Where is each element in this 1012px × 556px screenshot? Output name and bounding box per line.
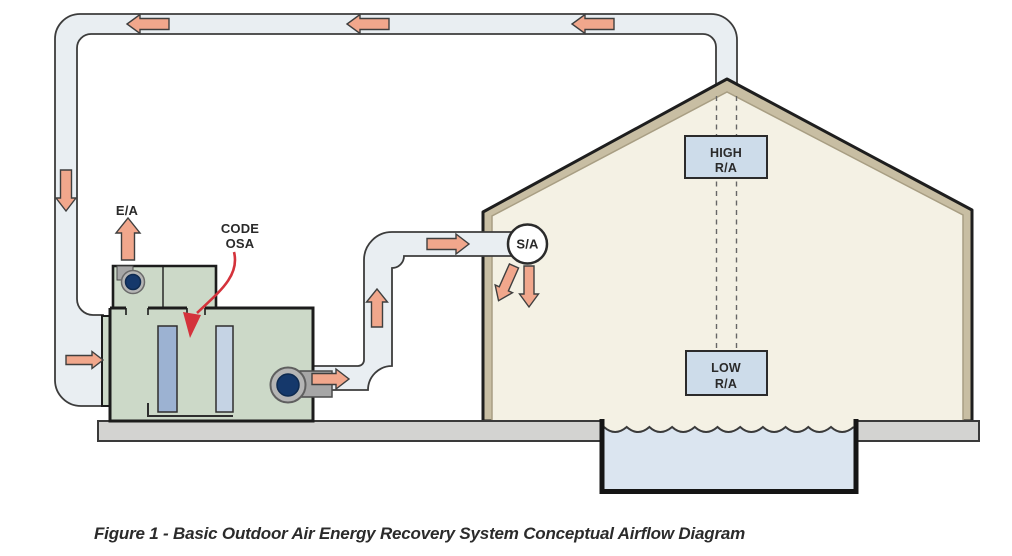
high-return-label-line2: R/A xyxy=(715,161,737,175)
exhaust-air-label: E/A xyxy=(116,203,139,218)
recovery-wheel-slat-right xyxy=(216,326,233,412)
pool-water xyxy=(604,427,854,490)
diagram-canvas: HIGH R/A LOW R/A S/A xyxy=(0,0,1012,556)
airflow-diagram: HIGH R/A LOW R/A S/A xyxy=(0,0,1012,556)
ground-platform-left xyxy=(98,421,602,441)
high-return-label-line1: HIGH xyxy=(710,146,742,160)
low-return-label-line2: R/A xyxy=(715,377,737,391)
recovery-wheel-slat-left xyxy=(158,326,177,412)
unit-main-body xyxy=(110,308,313,421)
energy-recovery-unit xyxy=(102,266,332,421)
airflow-arrow-exhaust-up xyxy=(116,218,140,260)
supply-fan-hub xyxy=(277,374,299,396)
code-osa-label-line1: CODE xyxy=(221,221,259,236)
supply-air-label: S/A xyxy=(516,237,539,252)
low-return-label-line1: LOW xyxy=(711,361,741,375)
code-osa-label-line2: OSA xyxy=(226,236,255,251)
ground-platform-right xyxy=(856,421,979,441)
figure-caption: Figure 1 - Basic Outdoor Air Energy Reco… xyxy=(94,524,745,543)
exhaust-fan-hub xyxy=(126,275,141,290)
